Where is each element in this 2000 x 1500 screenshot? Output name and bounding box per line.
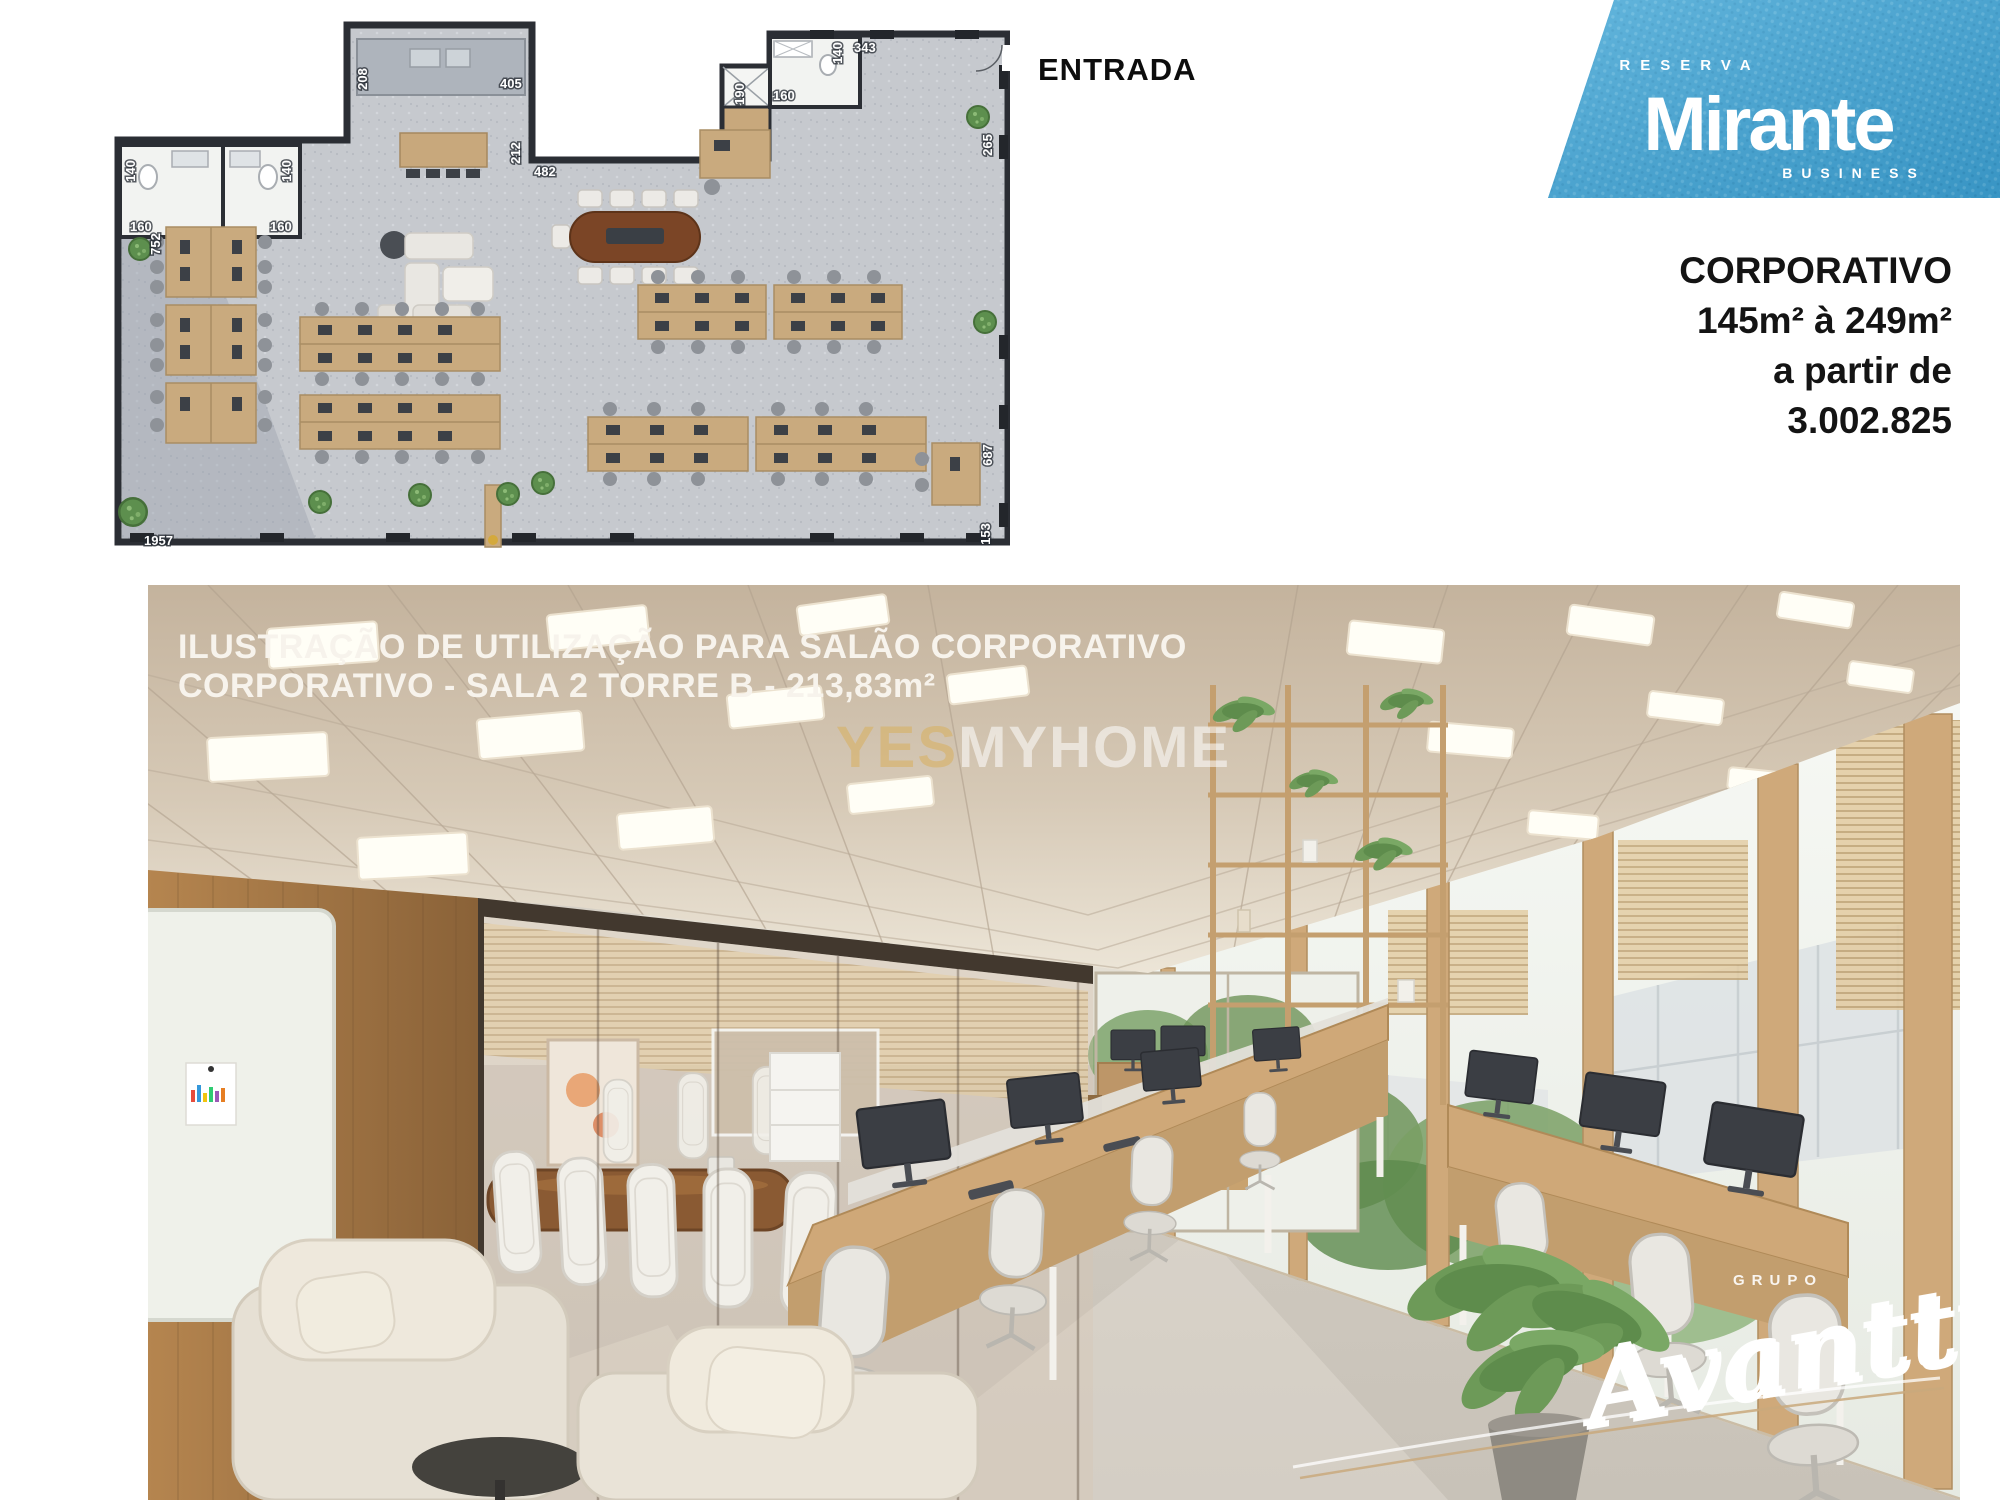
photo-sideboard [770,1053,840,1161]
dim-265: 265 [980,134,995,156]
logo-reserva: RESERVA [1619,57,1760,74]
logo-business: BUSINESS [1782,165,1926,181]
whiteboard-chart-note [186,1063,236,1125]
dim-405: 405 [500,76,522,91]
brochure-page: 208 405 212 482 190 160 140 343 140 160 … [0,0,2000,1500]
offer-title: CORPORATIVO [1679,246,1952,296]
offer-price: 3.002.825 [1679,396,1952,446]
caption-line-1: ILUSTRAÇÃO DE UTILIZAÇÃO PARA SALÃO CORP… [178,628,1187,666]
watermark-myhome: MYHOME [958,715,1231,780]
floor-plan: 208 405 212 482 190 160 140 343 140 160 … [110,5,1010,565]
dim-687: 687 [980,444,995,466]
dim-160-bath1: 160 [130,219,152,234]
dim-140-bath2: 140 [279,160,294,182]
dim-190: 190 [732,83,747,105]
dim-160-bath2: 160 [270,219,292,234]
offer-area-range: 145m² à 249m² [1679,296,1952,346]
dim-343: 343 [854,40,876,55]
dim-160-mid: 160 [773,88,795,103]
dim-752: 752 [148,233,163,255]
dim-482: 482 [534,164,556,179]
entrance-label: ENTRADA [1038,52,1197,88]
watermark: YESMYHOME [836,715,1231,780]
dim-140-mid: 140 [830,42,845,64]
dim-1957: 1957 [144,533,173,548]
dim-140-bath1: 140 [123,160,138,182]
caption-line-2: CORPORATIVO - SALA 2 TORRE B - 213,83m² [178,667,936,705]
watermark-yes: YES [836,715,958,780]
dim-208: 208 [355,68,370,90]
offer-prefix: a partir de [1679,346,1952,396]
office-render-photo: ILUSTRAÇÃO DE UTILIZAÇÃO PARA SALÃO CORP… [148,585,1960,1500]
dim-212: 212 [508,142,523,164]
brand-logo: RESERVA Mirante BUSINESS [1540,0,2000,210]
offer-block: CORPORATIVO 145m² à 249m² a partir de 3.… [1679,246,1952,446]
dim-153: 153 [978,523,993,545]
logo-mirante: Mirante [1643,82,1893,167]
